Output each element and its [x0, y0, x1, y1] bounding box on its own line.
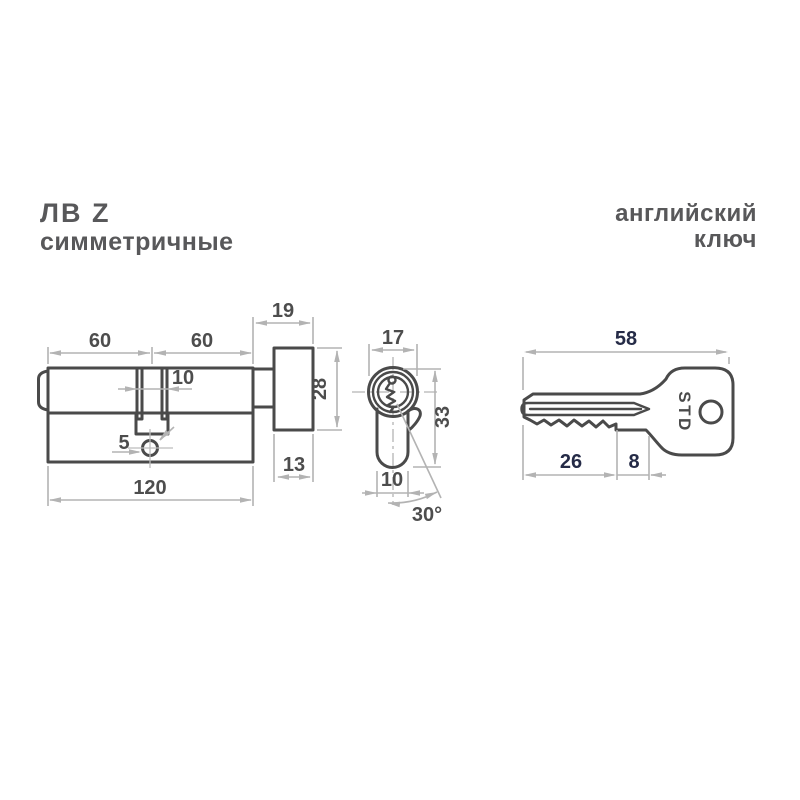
dim-label-blade-length: 26: [560, 451, 582, 473]
dim-label-key-total-length: 58: [615, 328, 637, 350]
dim-label-knob-total: 19: [272, 300, 294, 322]
dim-label-left-half: 60: [89, 330, 111, 352]
dim-label-shoulder: 8: [628, 451, 639, 473]
dim-label-barrel-width: 17: [382, 327, 404, 349]
dim-label-cam-slot: 10: [172, 367, 194, 389]
series-title: ЛВ Z: [40, 198, 110, 228]
thumbturn-knob: [274, 348, 313, 430]
cylinder-side-view: 60 60 19 10 5 120 13 28: [39, 300, 343, 506]
key-type-label-line1: английский: [615, 200, 757, 227]
dim-label-cam-angle: 30°: [412, 504, 442, 526]
dim-label-body-width: 10: [381, 469, 403, 491]
dim-label-right-half: 60: [191, 330, 213, 352]
dim-label-total-length: 120: [133, 477, 166, 499]
series-subtitle: симметричные: [40, 228, 234, 256]
technical-drawing: ЛВ Z симметричные английский ключ: [0, 0, 800, 800]
dim-label-knob-depth: 13: [283, 454, 305, 476]
cylinder-front-view: 17 33 10 30°: [352, 327, 454, 526]
key-type-label-line2: ключ: [694, 226, 757, 253]
dim-label-screw-hole: 5: [118, 432, 129, 454]
dim-label-total-height: 33: [432, 406, 454, 428]
header: ЛВ Z симметричные английский ключ: [40, 198, 757, 256]
knob-neck: [253, 369, 274, 407]
key-outline: [524, 368, 733, 455]
cam-slot: [137, 368, 167, 419]
brand-stamp: STD: [675, 391, 694, 433]
key-view: STD 58 26 8: [522, 328, 734, 480]
drawing-sheet: ЛВ Z симметричные английский ключ: [0, 0, 800, 800]
key-bow-hole: [700, 401, 722, 423]
dim-label-knob-height: 28: [309, 378, 331, 400]
